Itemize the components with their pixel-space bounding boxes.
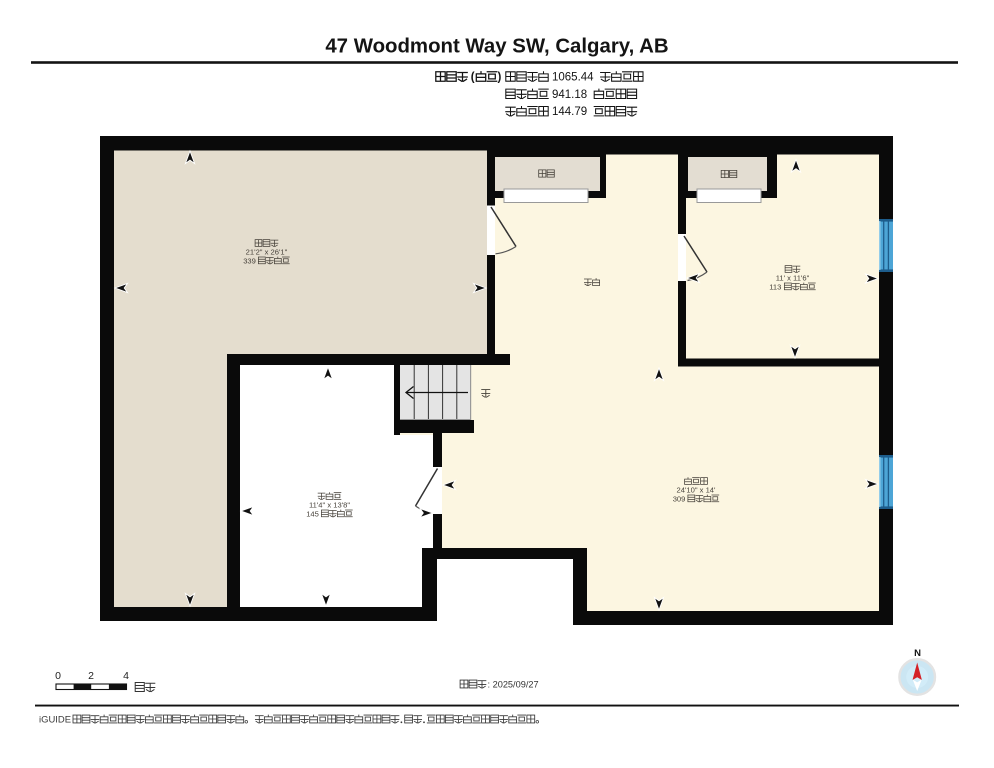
svg-text:47 Woodmont Way SW, Calgary, A: 47 Woodmont Way SW, Calgary, AB xyxy=(325,36,668,58)
svg-text:339: 339 xyxy=(243,256,256,265)
svg-text:: 2025/09/27: : 2025/09/27 xyxy=(488,680,539,690)
svg-text:941.18: 941.18 xyxy=(552,89,587,101)
svg-text:1065.44: 1065.44 xyxy=(552,72,594,84)
svg-text:): ) xyxy=(498,72,502,84)
svg-text:113: 113 xyxy=(769,282,781,291)
svg-text:309: 309 xyxy=(673,494,686,503)
svg-text:N: N xyxy=(914,648,921,659)
svg-text:11' x 11'6": 11' x 11'6" xyxy=(776,274,810,283)
svg-text:4: 4 xyxy=(123,670,129,682)
svg-text:iGUIDE: iGUIDE xyxy=(39,714,71,725)
svg-text:0: 0 xyxy=(55,670,61,682)
svg-text:(: ( xyxy=(471,72,475,84)
svg-text:145: 145 xyxy=(306,509,319,518)
svg-text:2: 2 xyxy=(88,670,94,682)
svg-text:21'2" x 26'1": 21'2" x 26'1" xyxy=(246,248,288,257)
svg-text:24'10" x 14': 24'10" x 14' xyxy=(677,486,717,495)
svg-text:11'4" x 13'8": 11'4" x 13'8" xyxy=(309,501,350,510)
svg-text:144.79: 144.79 xyxy=(552,106,587,118)
